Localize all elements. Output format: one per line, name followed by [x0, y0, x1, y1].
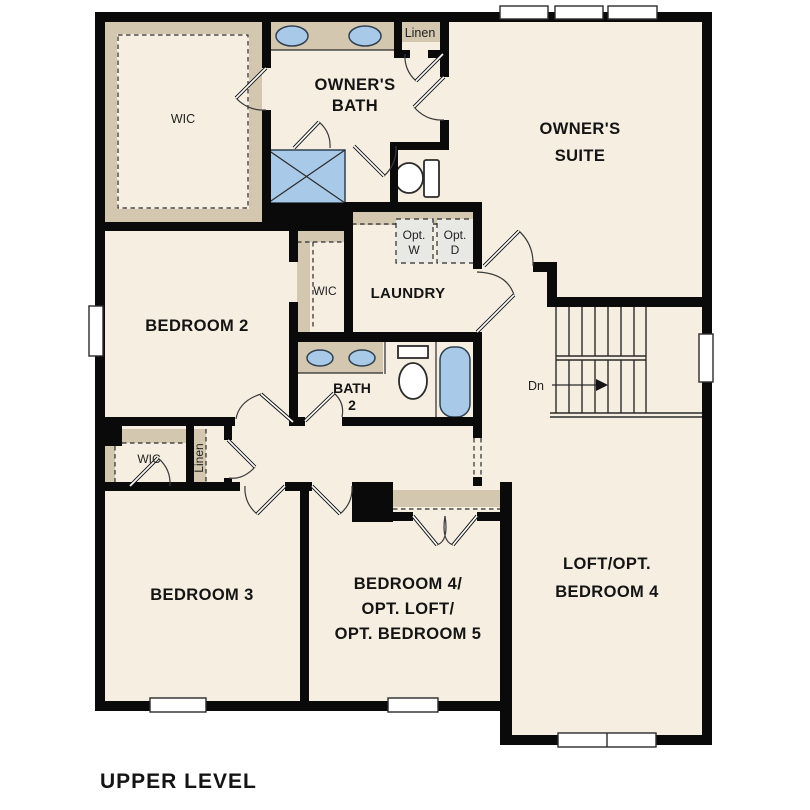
room-label-owners-bath-2: BATH: [332, 97, 378, 115]
room-label-wic-bedroom2: WIC: [313, 284, 337, 298]
window: [500, 6, 548, 19]
label-opt-dryer-2: D: [451, 243, 460, 257]
room-label-bedroom2: BEDROOM 2: [145, 317, 249, 335]
toilet-tank-icon: [398, 346, 428, 358]
wic2-shelf-top: [297, 231, 344, 242]
room-label-loft-2: BEDROOM 4: [555, 583, 659, 601]
sink-icon: [349, 26, 381, 46]
plan-title: UPPER LEVEL: [100, 770, 257, 793]
window: [699, 334, 713, 382]
sink-icon: [276, 26, 308, 46]
bathtub-icon: [440, 347, 470, 417]
room-label-owners-suite-2: SUITE: [555, 147, 606, 165]
room-label-linen-top: Linen: [405, 26, 436, 40]
room-label-bedroom3: BEDROOM 3: [150, 586, 254, 604]
label-opt-washer: Opt.: [403, 228, 426, 242]
toilet-tank-icon: [424, 160, 439, 197]
floor-plan: WIC OWNER'S BATH Linen OWNER'S SUITE Opt…: [0, 0, 810, 810]
room-label-bath2-2: 2: [348, 397, 356, 413]
room-label-owners-wic: WIC: [171, 112, 195, 126]
wic3-shelf-top: [122, 429, 186, 443]
label-opt-washer-2: W: [408, 243, 420, 257]
bedroom4-closet-shelf: [393, 490, 503, 507]
sink-icon: [307, 350, 333, 366]
room-label-laundry: LAUNDRY: [371, 285, 446, 302]
window: [89, 306, 103, 356]
sink-icon: [349, 350, 375, 366]
label-stairs-down: Dn: [528, 379, 544, 393]
room-label-owners-suite: OWNER'S: [540, 120, 621, 138]
wic2-shelf-left: [297, 242, 310, 332]
toilet-icon: [399, 363, 427, 399]
room-label-wic-bedroom3: WIC: [137, 452, 161, 466]
toilet-icon: [395, 163, 423, 193]
room-label-owners-bath: OWNER'S: [315, 76, 396, 94]
room-label-bath2: BATH: [333, 380, 371, 396]
room-label-linen-hall: Linen: [192, 443, 206, 472]
window: [150, 698, 206, 712]
wic3-shelf-left: [104, 446, 115, 488]
window: [555, 6, 603, 19]
label-opt-dryer: Opt.: [444, 228, 467, 242]
room-label-bedroom4-3: OPT. BEDROOM 5: [335, 625, 482, 643]
room-label-bedroom4: BEDROOM 4/: [354, 575, 463, 593]
window: [388, 698, 438, 712]
floor-plan-page: WIC OWNER'S BATH Linen OWNER'S SUITE Opt…: [0, 0, 810, 810]
room-label-loft: LOFT/OPT.: [563, 555, 651, 573]
room-label-bedroom4-2: OPT. LOFT/: [362, 600, 455, 618]
window: [608, 6, 657, 19]
